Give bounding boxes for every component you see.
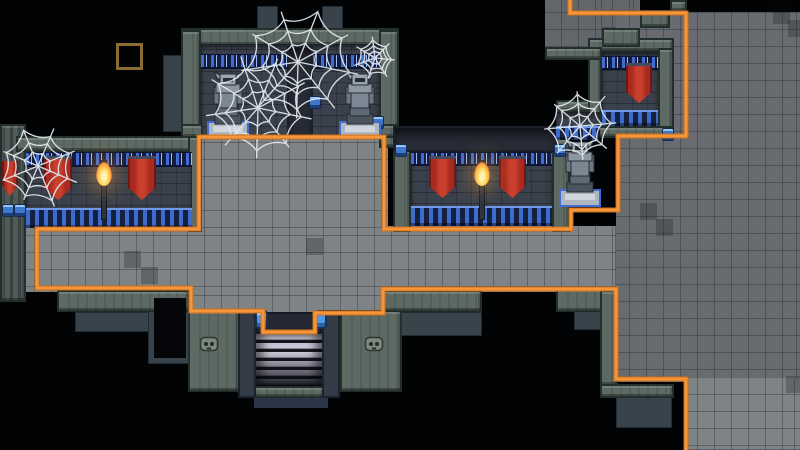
torch-flame-icon [96, 162, 112, 186]
blue-urn [662, 128, 674, 141]
wall-shadow-block [322, 6, 343, 30]
floor-region [22, 226, 620, 292]
floor-dark-tile [788, 20, 800, 37]
wall-cap [545, 47, 602, 60]
wall-top-shadow [393, 126, 557, 152]
torch-flame-icon [474, 162, 490, 186]
wall-recess [287, 46, 313, 136]
gargoyle-face [364, 336, 384, 356]
statue-graphic [338, 70, 382, 142]
blue-urn [2, 204, 14, 217]
wall-shadow-block [616, 396, 672, 428]
knight-statue [206, 70, 250, 146]
blue-urn [309, 96, 321, 109]
wall-cap [556, 288, 604, 312]
wall-shadow-block [163, 55, 183, 132]
floor-dark-tile [786, 376, 800, 393]
wall-shadow-block [257, 6, 278, 30]
floor-region [686, 378, 800, 450]
wall-cap [600, 290, 618, 386]
stair-side-column [238, 310, 256, 398]
floor-region [194, 136, 388, 228]
floor-dark-tile [640, 203, 657, 220]
game-viewport[interactable] [0, 0, 800, 450]
gargoyle-face-graphic [364, 336, 384, 352]
blue-lamp [255, 310, 268, 329]
statue-graphic [206, 70, 250, 142]
blue-urn [395, 144, 407, 157]
statue-graphic [558, 138, 602, 210]
wall-cap [640, 10, 670, 28]
floor-dark-tile [141, 267, 158, 284]
knight-statue [338, 70, 382, 146]
wall-cap [393, 150, 411, 232]
floor-dark-tile [656, 219, 673, 236]
knight-statue [558, 138, 602, 214]
gargoyle-face [199, 336, 219, 356]
blue-lamp [314, 310, 327, 329]
blue-urn [14, 204, 26, 217]
torch [94, 150, 114, 220]
wall-cap [658, 48, 674, 130]
doorway-opening [154, 298, 186, 358]
wall-cap [600, 384, 674, 398]
staircase [256, 334, 322, 386]
selection-marker [116, 43, 143, 70]
floor-dark-tile [124, 251, 141, 268]
floor-dark-tile [306, 238, 323, 255]
torch [472, 150, 492, 220]
wall-cap [602, 28, 640, 47]
wall-shadow-block [395, 312, 482, 336]
wall-cap [670, 0, 687, 12]
wall-cap [383, 290, 482, 312]
dungeon-wall [556, 112, 600, 140]
gargoyle-face-graphic [199, 336, 219, 352]
wall-baseboard [602, 110, 658, 126]
